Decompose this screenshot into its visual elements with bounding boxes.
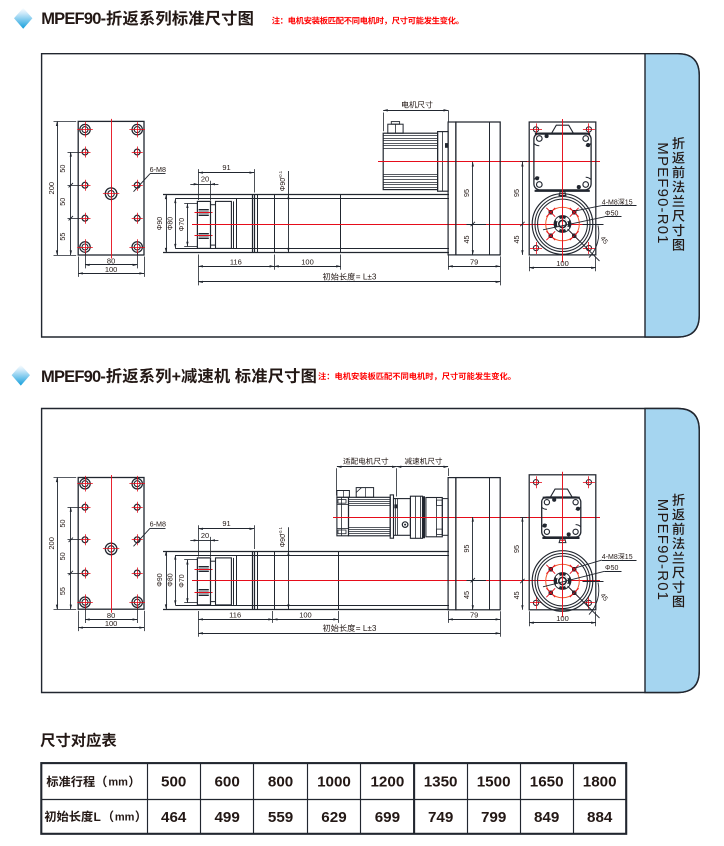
svg-text:600: 600: [214, 774, 239, 791]
svg-text:Φ50: Φ50: [605, 565, 618, 572]
svg-text:100: 100: [301, 258, 314, 267]
svg-text:95: 95: [462, 189, 471, 197]
svg-text:799: 799: [481, 809, 506, 826]
svg-text:mm: mm: [108, 776, 128, 788]
svg-text:499: 499: [214, 809, 239, 826]
svg-text:629: 629: [321, 809, 346, 826]
svg-text:50: 50: [58, 198, 67, 206]
svg-text:L: L: [94, 810, 101, 824]
svg-text:79: 79: [470, 611, 478, 620]
svg-text:200: 200: [47, 537, 56, 550]
svg-text:849: 849: [534, 809, 559, 826]
svg-text:Φ70: Φ70: [179, 574, 186, 587]
svg-text:15: 15: [625, 199, 633, 206]
svg-text:1650: 1650: [530, 774, 564, 791]
svg-text:20: 20: [201, 531, 209, 540]
svg-text:699: 699: [375, 809, 400, 826]
svg-text:1200: 1200: [370, 774, 404, 791]
svg-text:100: 100: [299, 611, 312, 620]
svg-text:749: 749: [428, 809, 453, 826]
svg-text:79: 79: [470, 258, 478, 267]
svg-text:116: 116: [229, 611, 241, 620]
svg-text:100: 100: [556, 614, 569, 623]
svg-text:45: 45: [599, 235, 609, 245]
svg-text:95: 95: [512, 545, 521, 553]
svg-text:116: 116: [230, 258, 242, 267]
svg-text:Φ80: Φ80: [168, 573, 175, 586]
svg-text:95: 95: [462, 545, 471, 553]
svg-text:1500: 1500: [477, 774, 511, 791]
svg-text:1800: 1800: [583, 774, 617, 791]
svg-text:100: 100: [105, 619, 118, 628]
svg-text:+: +: [172, 368, 181, 385]
svg-text:20: 20: [201, 175, 209, 184]
svg-text:MPEF90-: MPEF90-: [41, 368, 105, 386]
svg-text:Φ90: Φ90: [157, 217, 164, 230]
svg-text:Φ70: Φ70: [179, 218, 186, 231]
svg-text:MPEF90-R01: MPEF90-R01: [654, 142, 671, 244]
svg-text:100: 100: [105, 265, 118, 274]
svg-text:55: 55: [58, 233, 67, 241]
svg-text:95: 95: [512, 189, 521, 197]
svg-text:45: 45: [512, 591, 521, 599]
svg-text:50: 50: [58, 552, 67, 560]
svg-text:45: 45: [462, 591, 471, 599]
svg-text:1350: 1350: [424, 774, 458, 791]
svg-text:45: 45: [599, 592, 609, 602]
svg-text:884: 884: [587, 809, 613, 826]
svg-text:45: 45: [462, 235, 471, 243]
svg-text:Φ90: Φ90: [157, 573, 164, 586]
svg-text:Φ80: Φ80: [168, 217, 175, 230]
svg-text:800: 800: [268, 774, 293, 791]
svg-text:464: 464: [161, 809, 187, 826]
svg-text:4-M8: 4-M8: [602, 554, 618, 561]
svg-text:4-M8: 4-M8: [602, 199, 618, 206]
svg-text:MPEF90-R01: MPEF90-R01: [654, 499, 671, 601]
svg-text:55: 55: [58, 587, 67, 595]
svg-text:Φ50: Φ50: [605, 211, 618, 218]
svg-text:45: 45: [512, 235, 521, 243]
svg-text:15: 15: [625, 554, 633, 561]
svg-text:91: 91: [222, 519, 230, 528]
svg-text:500: 500: [161, 774, 186, 791]
svg-text:+0.1: +0.1: [278, 526, 283, 535]
svg-text:50: 50: [58, 520, 67, 528]
svg-text:6-M8: 6-M8: [150, 520, 166, 529]
svg-text:6-M8: 6-M8: [150, 165, 166, 174]
svg-text:= L±3: = L±3: [356, 624, 377, 633]
svg-text:559: 559: [268, 809, 293, 826]
svg-text:200: 200: [47, 182, 56, 195]
svg-text:100: 100: [556, 259, 569, 268]
svg-text:mm: mm: [115, 811, 135, 823]
svg-text:50: 50: [58, 165, 67, 173]
svg-text:+0.1: +0.1: [278, 170, 283, 179]
svg-text:= L±3: = L±3: [356, 273, 377, 282]
svg-text:91: 91: [222, 163, 230, 172]
svg-text:1000: 1000: [317, 774, 351, 791]
svg-text:MPEF90-: MPEF90-: [41, 10, 105, 28]
